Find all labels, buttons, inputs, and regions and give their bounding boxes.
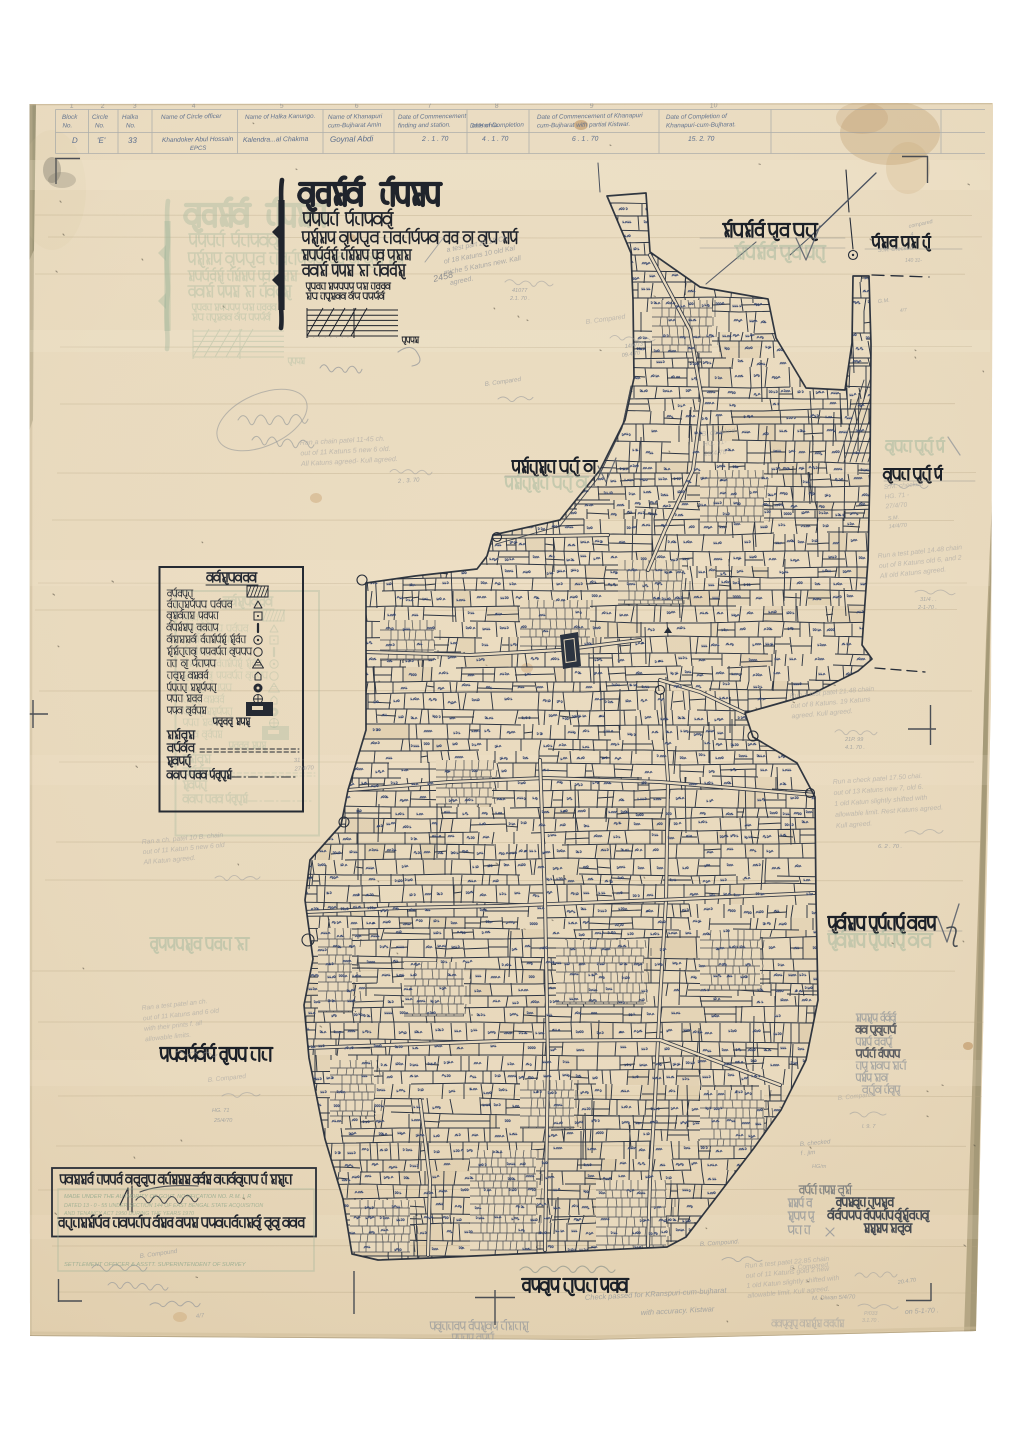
svg-text:4/7: 4/7 <box>900 307 908 314</box>
svg-text:31 -: 31 - <box>294 757 304 764</box>
svg-text:15. 2. 70: 15. 2. 70 <box>688 136 715 143</box>
svg-text:of Hamla.: of Hamla. <box>472 122 499 129</box>
svg-text:6. 2 . 70 .: 6. 2 . 70 . <box>878 844 902 850</box>
svg-text:2.1. 70 .: 2.1. 70 . <box>509 296 530 302</box>
svg-text:P/033: P/033 <box>864 1311 878 1317</box>
svg-text:31/4 . .: 31/4 . . <box>920 597 937 603</box>
svg-text:cum-Bujharat Amin: cum-Bujharat Amin <box>328 122 382 130</box>
svg-text:Name of Khanapuri: Name of Khanapuri <box>328 113 383 121</box>
svg-text:3.1.70 .: 3.1.70 . <box>862 1318 879 1324</box>
svg-text:EPCS: EPCS <box>190 146 206 152</box>
svg-text:Date of Completion of: Date of Completion of <box>666 113 728 121</box>
svg-text:G.M.: G.M. <box>878 298 890 305</box>
svg-text:DATED 13 - 0 - 55 UNDER SECTI: DATED 13 - 0 - 55 UNDER SECTION 144 OF E… <box>64 1203 263 1209</box>
svg-text:2 . 1 . 70: 2 . 1 . 70 <box>421 136 449 143</box>
svg-text:Khandoker Abul Hossain: Khandoker Abul Hossain <box>162 136 234 144</box>
svg-text:Date of Commencement: Date of Commencement <box>398 113 467 121</box>
svg-text:21P. 99: 21P. 99 <box>844 737 863 743</box>
svg-text:HG/m: HG/m <box>812 1164 827 1170</box>
svg-text:Block: Block <box>62 114 78 121</box>
svg-text:4 . 1 . 70: 4 . 1 . 70 <box>482 136 509 143</box>
svg-text:f . jim: f . jim <box>800 1149 815 1157</box>
svg-text:D: D <box>72 136 78 145</box>
svg-text:Name of Circle officer: Name of Circle officer <box>161 113 223 121</box>
svg-text:Halka: Halka <box>122 114 139 121</box>
svg-text:Goynal Abdi: Goynal Abdi <box>330 134 374 144</box>
svg-text:HG. 71: HG. 71 <box>212 1108 229 1114</box>
svg-text:SETTLEMENT OFFICER & ASSTT. SU: SETTLEMENT OFFICER & ASSTT. SUPERINTENDE… <box>64 1262 247 1268</box>
svg-text:No.: No. <box>126 122 136 129</box>
svg-text:MADE UNDER THE AUTHORITY OF GO: MADE UNDER THE AUTHORITY OF GOVT. NOTIFI… <box>64 1194 251 1200</box>
svg-text:Circle: Circle <box>92 114 109 121</box>
svg-text:41077: 41077 <box>512 288 528 294</box>
svg-text:S.M.: S.M. <box>888 515 900 522</box>
svg-text:25/4/70: 25/4/70 <box>213 1118 233 1124</box>
svg-text:Khanapuri-cum-Bujharat.: Khanapuri-cum-Bujharat. <box>666 121 736 129</box>
svg-text:Kalendra...al Chakma: Kalendra...al Chakma <box>243 136 309 144</box>
svg-text:l. 9. 7: l. 9. 7 <box>862 1124 876 1130</box>
svg-text:2-1-70 .: 2-1-70 . <box>917 605 937 611</box>
svg-text:No.: No. <box>95 122 105 129</box>
svg-text:4.1. 70 .: 4.1. 70 . <box>845 745 865 751</box>
svg-text:140 31-: 140 31- <box>905 258 922 264</box>
svg-text:'E': 'E' <box>97 136 106 145</box>
svg-text:4/7: 4/7 <box>196 1313 206 1320</box>
svg-text:finding and station.: finding and station. <box>398 122 451 130</box>
svg-text:Name of Halka Kanungo.: Name of Halka Kanungo. <box>245 113 315 121</box>
svg-text:AND TENANCY ACT 1950 DURING: AND TENANCY ACT 1950 DURING THE YEARS 19… <box>63 1211 194 1217</box>
svg-text:No.: No. <box>62 122 72 129</box>
svg-text:6 . 1 . 70: 6 . 1 . 70 <box>572 136 599 143</box>
svg-text:33: 33 <box>128 136 138 145</box>
